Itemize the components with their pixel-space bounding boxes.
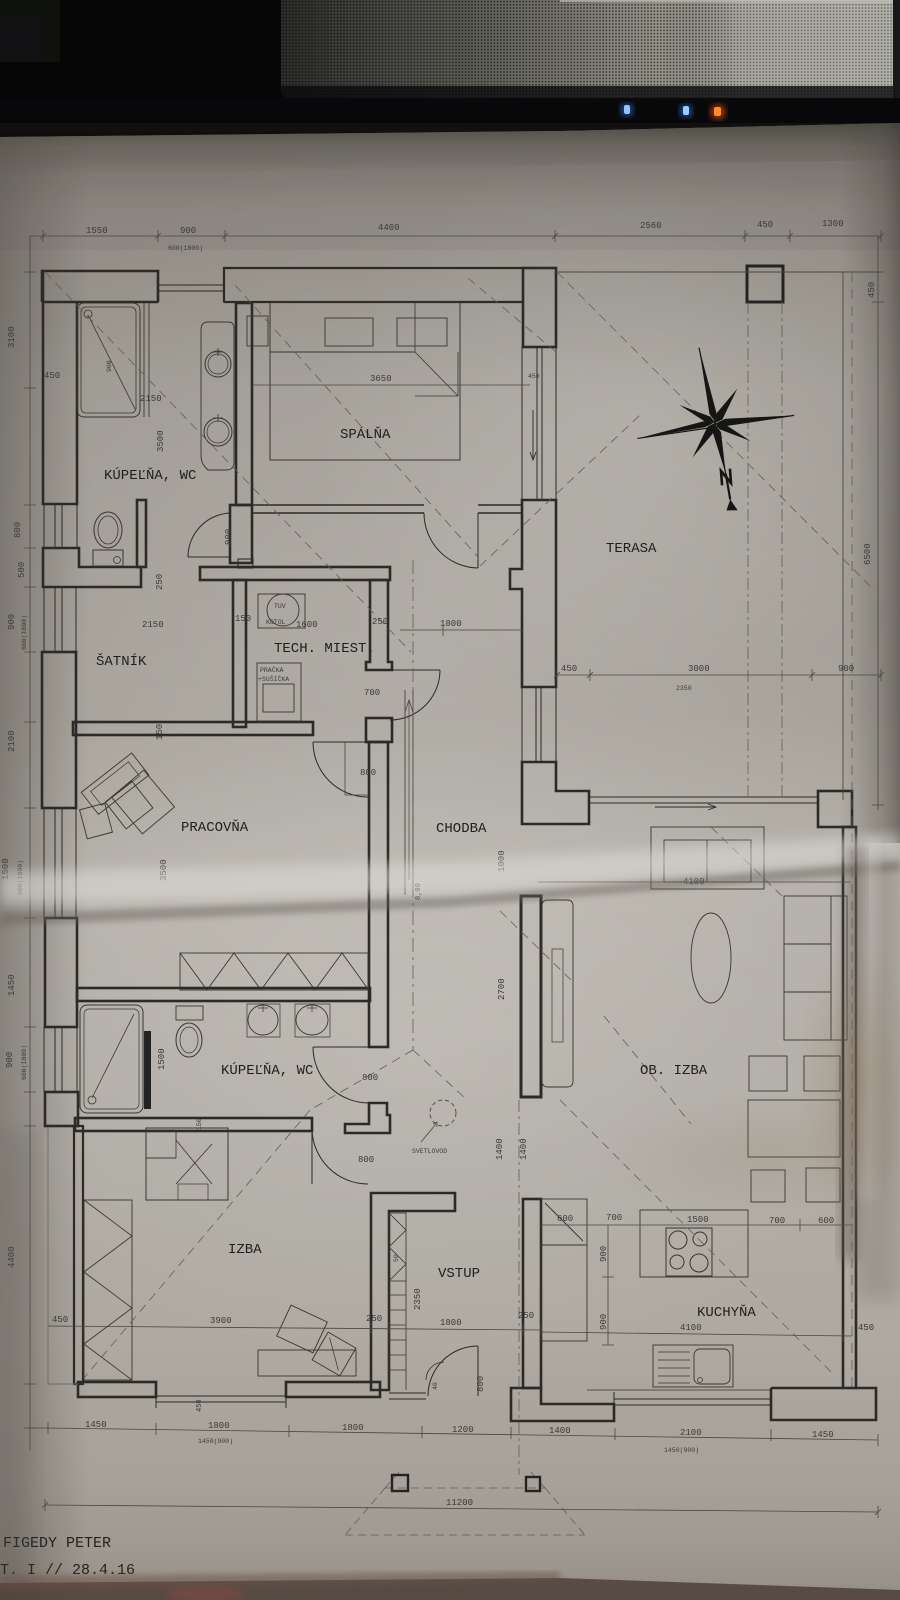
svg-text:+SUŠIČKA: +SUŠIČKA [258,674,289,683]
svg-text:2150: 2150 [140,394,162,404]
svg-text:600: 600 [818,1216,834,1226]
svg-text:1200: 1200 [452,1425,474,1435]
svg-text:2560: 2560 [640,221,662,231]
svg-text:900: 900 [7,614,17,630]
svg-text:CHODBA: CHODBA [436,821,487,837]
svg-text:800: 800 [362,1073,378,1083]
svg-text:800: 800 [358,1155,374,1165]
svg-text:ŠATNÍK: ŠATNÍK [96,652,147,670]
svg-text:250: 250 [518,1311,534,1321]
svg-text:150: 150 [235,614,251,624]
svg-text:450: 450 [52,1315,68,1325]
svg-text:KÚPEĽŇA, WC: KÚPEĽŇA, WC [104,466,196,484]
svg-text:1400: 1400 [519,1138,529,1160]
svg-text:900: 900 [838,664,854,674]
svg-text:250: 250 [366,1314,382,1324]
svg-text:1450(900): 1450(900) [198,1438,233,1445]
svg-text:250: 250 [155,574,165,590]
svg-text:TERASA: TERASA [606,541,657,557]
svg-text:900: 900 [599,1246,609,1262]
svg-text:11200: 11200 [446,1498,473,1508]
svg-text:3900: 3900 [210,1316,232,1326]
svg-text:450: 450 [757,220,773,230]
svg-text:2100: 2100 [7,730,17,752]
svg-text:1800: 1800 [440,1318,462,1328]
svg-text:1450(900): 1450(900) [664,1447,699,1454]
svg-text:700: 700 [364,688,380,698]
svg-text:800: 800 [360,768,376,778]
svg-text:4100: 4100 [680,1323,702,1333]
svg-text:PRAČKA: PRAČKA [260,665,284,674]
svg-text:IZBA: IZBA [228,1242,262,1258]
svg-text:1500: 1500 [687,1215,709,1225]
svg-text:450: 450 [44,371,60,381]
svg-text:VSTUP: VSTUP [438,1266,480,1282]
svg-text:600(1800): 600(1800) [21,615,28,650]
svg-text:450: 450 [858,1323,874,1333]
svg-text:KOTOL: KOTOL [266,619,286,626]
svg-text:1600: 1600 [296,620,318,630]
svg-text:1800: 1800 [440,619,462,629]
svg-text:450: 450 [528,373,540,380]
svg-text:450: 450 [196,1399,204,1412]
svg-text:800: 800 [13,522,23,538]
svg-text:900: 900 [599,1314,609,1330]
svg-text:2700: 2700 [497,978,507,1000]
svg-text:600: 600 [557,1214,573,1224]
svg-text:TECH. MIEST.: TECH. MIEST. [274,641,375,657]
svg-text:900: 900 [224,529,234,545]
svg-text:PRACOVŇA: PRACOVŇA [181,818,249,836]
svg-text:TUV: TUV [274,603,286,610]
svg-text:KÚPEĽŇA, WC: KÚPEĽŇA, WC [221,1061,313,1079]
svg-text:450: 450 [561,664,577,674]
svg-text:SPÁLŇA: SPÁLŇA [340,425,391,443]
svg-text:2150: 2150 [142,620,164,630]
svg-text:1500: 1500 [157,1048,167,1070]
svg-text:3000: 3000 [688,664,710,674]
svg-text:900: 900 [5,1052,15,1068]
svg-text:900: 900 [106,360,113,372]
svg-text:1450: 1450 [812,1430,834,1440]
svg-text:2100: 2100 [680,1428,702,1438]
svg-text:3500: 3500 [156,430,166,452]
svg-text:1550: 1550 [86,226,108,236]
svg-text:2350: 2350 [676,685,692,692]
svg-text:800: 800 [476,1376,486,1392]
svg-text:2350: 2350 [413,1288,423,1310]
svg-text:50: 50 [393,1254,400,1262]
svg-text:1450: 1450 [85,1420,107,1430]
svg-text:900: 900 [180,226,196,236]
svg-text:700: 700 [606,1213,622,1223]
svg-text:1800: 1800 [208,1421,230,1431]
svg-text:1300: 1300 [822,219,844,229]
svg-text:600(1800): 600(1800) [168,245,203,252]
svg-text:500: 500 [17,562,27,578]
svg-text:OB. IZBA: OB. IZBA [640,1063,708,1079]
svg-text:1400: 1400 [549,1426,571,1436]
svg-text:600(1800): 600(1800) [21,1045,28,1080]
svg-text:1450: 1450 [7,974,17,996]
svg-text:3100: 3100 [7,326,17,348]
svg-text:150: 150 [196,1118,203,1130]
svg-text:700: 700 [769,1216,785,1226]
svg-text:450: 450 [867,282,877,298]
svg-text:SVETLOVOD: SVETLOVOD [412,1148,447,1155]
svg-text:250: 250 [372,617,388,627]
svg-text:4400: 4400 [378,223,400,233]
svg-text:6500: 6500 [863,543,873,565]
svg-text:1800: 1800 [342,1423,364,1433]
svg-text:40: 40 [432,1382,439,1390]
svg-text:3650: 3650 [370,374,392,384]
svg-text:1400: 1400 [495,1138,505,1160]
svg-text:150: 150 [155,724,165,740]
svg-text:KUCHYŇA: KUCHYŇA [697,1303,756,1321]
